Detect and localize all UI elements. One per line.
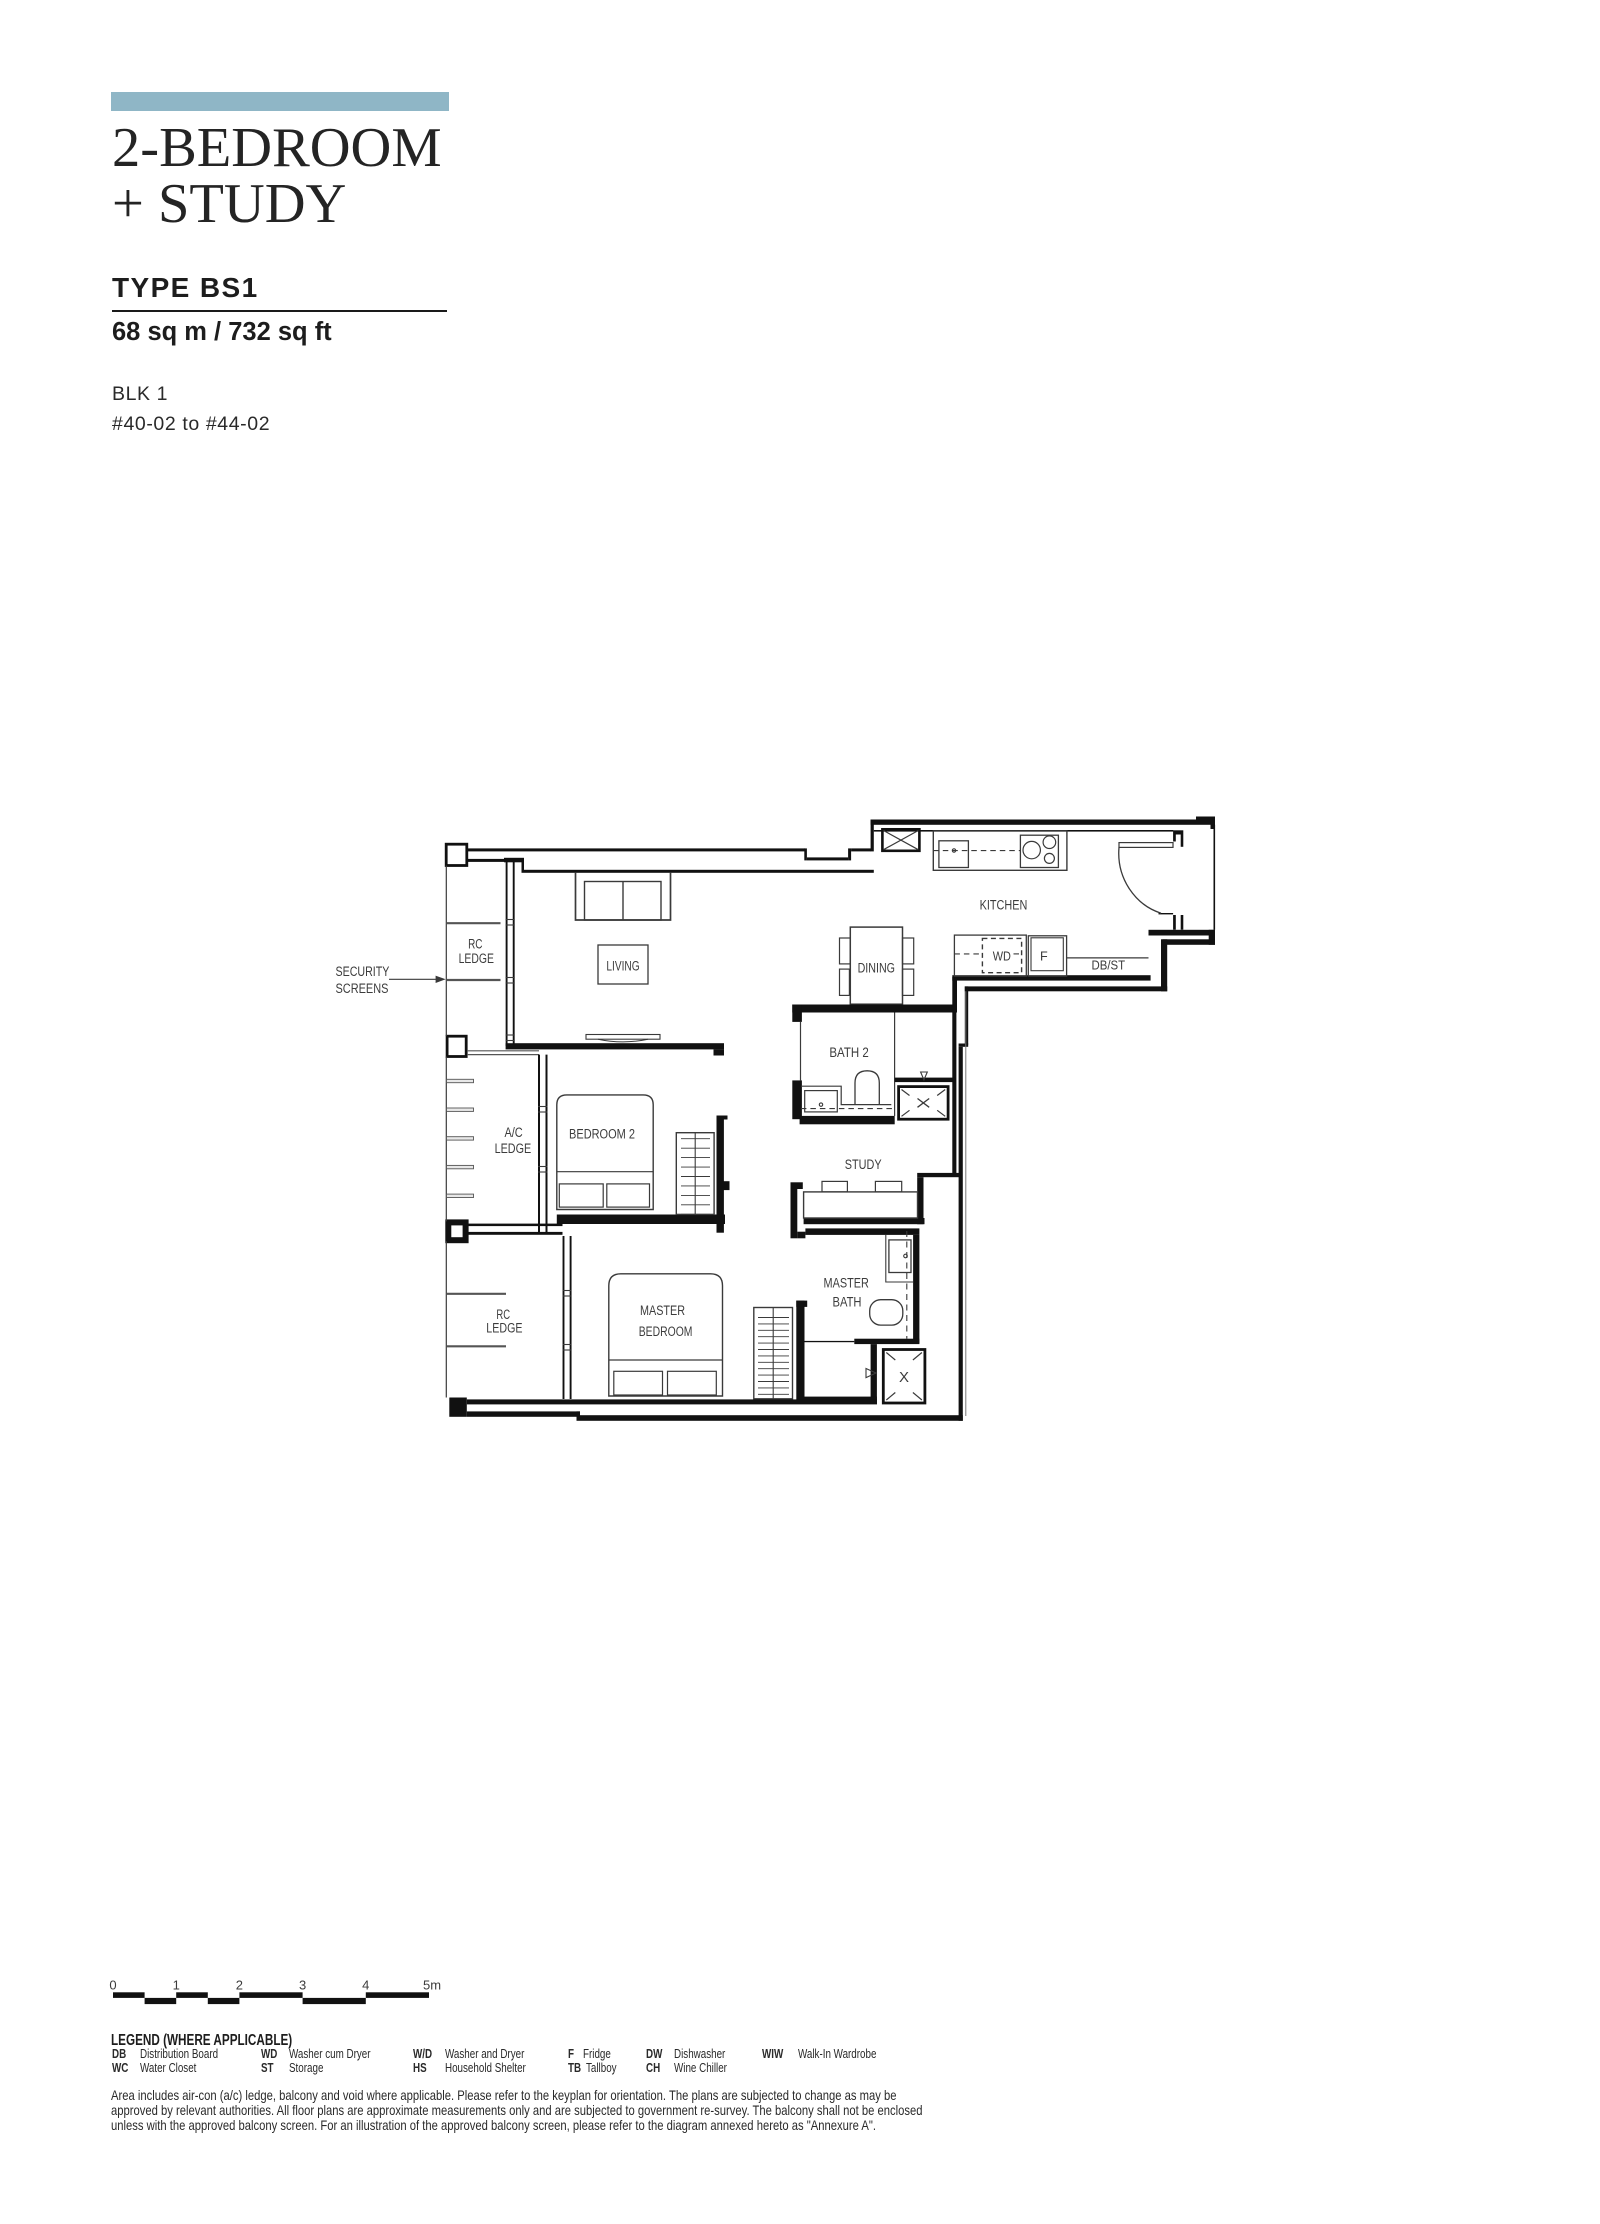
svg-text:2: 2 (236, 1978, 243, 1993)
svg-text:LIVING: LIVING (606, 959, 639, 974)
svg-text:1: 1 (173, 1978, 180, 1993)
svg-text:F: F (1040, 949, 1048, 963)
svg-text:5m: 5m (423, 1978, 441, 1993)
svg-text:LEDGE: LEDGE (459, 951, 494, 966)
svg-text:DB/ST: DB/ST (1092, 959, 1126, 973)
svg-text:LEDGE: LEDGE (486, 1321, 522, 1336)
svg-text:BEDROOM 2: BEDROOM 2 (569, 1127, 635, 1142)
svg-text:SCREENS: SCREENS (336, 981, 389, 996)
svg-text:3: 3 (299, 1978, 306, 1993)
svg-text:MASTER: MASTER (640, 1303, 685, 1318)
svg-text:BATH 2: BATH 2 (829, 1045, 868, 1060)
svg-text:STUDY: STUDY (845, 1157, 882, 1172)
svg-text:4: 4 (362, 1978, 369, 1993)
svg-text:A/C: A/C (504, 1125, 522, 1140)
svg-text:BEDROOM: BEDROOM (639, 1324, 693, 1339)
svg-text:DINING: DINING (858, 961, 895, 976)
svg-text:RC: RC (468, 937, 483, 952)
svg-text:WD: WD (993, 949, 1011, 963)
svg-text:LEDGE: LEDGE (495, 1141, 532, 1156)
svg-text:X: X (899, 1369, 909, 1386)
svg-text:0: 0 (109, 1978, 116, 1993)
svg-text:BATH: BATH (833, 1295, 862, 1310)
svg-text:MASTER: MASTER (824, 1276, 869, 1291)
svg-text:SECURITY: SECURITY (336, 964, 390, 979)
svg-text:KITCHEN: KITCHEN (980, 898, 1028, 913)
